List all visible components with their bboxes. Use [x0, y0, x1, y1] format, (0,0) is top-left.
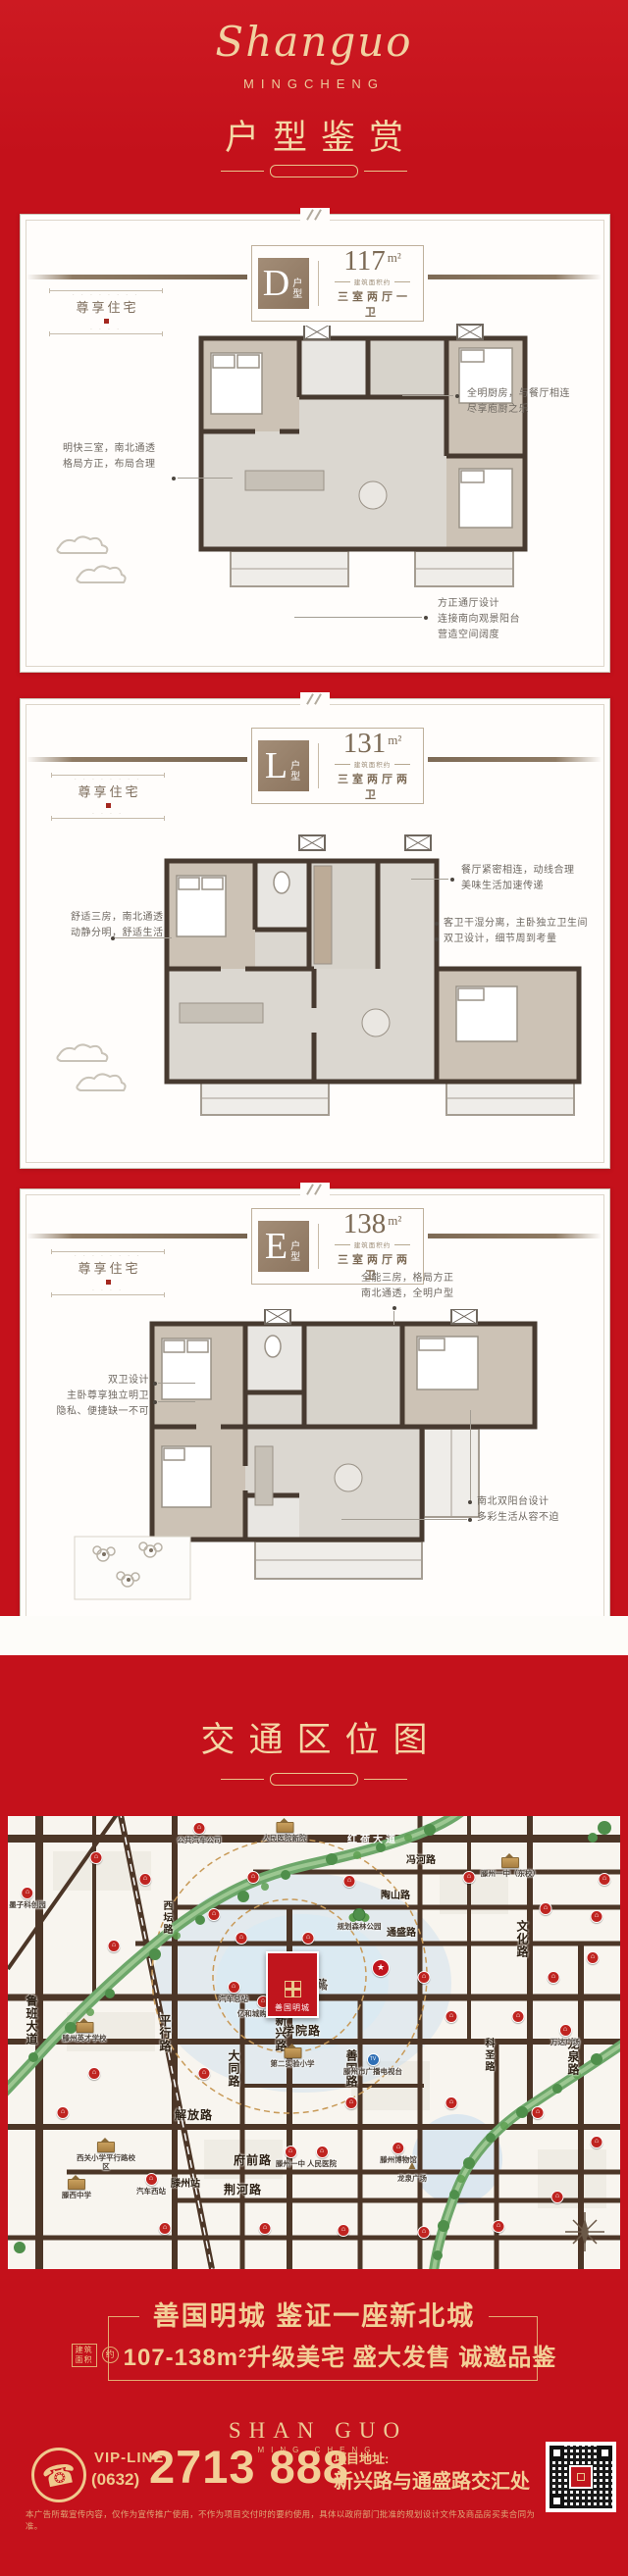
map-landmark: 滕西中学 [62, 2175, 91, 2199]
map-landmark [445, 2010, 458, 2024]
map-landmark [235, 1932, 248, 1945]
map-landmark [259, 2222, 272, 2236]
landmark-label: 西关小学平行路校区 [75, 2153, 137, 2172]
slash-decor-icon [300, 1183, 330, 1196]
landmark-icon [353, 1908, 366, 1921]
landmark-icon [276, 1822, 293, 1833]
map-landmark [463, 1871, 476, 1885]
map-landmark: 规划森林公园 [338, 1908, 382, 1931]
road-label: 府前路 [234, 2151, 272, 2168]
landmark-icon [159, 2222, 172, 2235]
disclaimer: 本广告所载宣传内容，仅作为宣传推广使用，不作为项目交付时的要约使用，具体以政府部… [26, 2508, 540, 2532]
map-landmark: 西关小学平行路校区 [75, 2138, 137, 2172]
map-landmark [551, 2191, 564, 2204]
map-landmark: 公共汽车公司 [178, 1822, 222, 1844]
landmark-icon [22, 1887, 34, 1899]
landmark-icon [343, 1875, 356, 1888]
annotation: 餐厅紧密相连，动线合理美味生活加速传递 [461, 863, 603, 894]
landmark-icon [76, 2022, 93, 2033]
landmark-icon [108, 1940, 121, 1952]
map-landmark [372, 1959, 390, 1978]
area-value: 138m² [328, 1210, 417, 1238]
map-landmark [418, 1971, 431, 1985]
map-landmark [345, 2096, 358, 2110]
road-label: 西坛路 [159, 1900, 174, 1936]
landmark-icon [235, 1932, 248, 1945]
annotation: 舒适三房，南北通透动静分明，舒适生活 [71, 910, 247, 941]
section-title-huxing: 户型鉴赏 [0, 110, 628, 160]
type-letter-box: L 户型 [258, 740, 309, 791]
map-landmark [302, 1932, 315, 1945]
map-landmark: 滕州市广播电视台 [343, 2053, 402, 2076]
map-landmark [198, 2067, 211, 2081]
area-note: 建筑面积约 [328, 759, 417, 769]
area-value: 117m² [328, 247, 417, 276]
map-landmark [343, 1875, 356, 1889]
landmark-icon [90, 1851, 103, 1864]
brand-logo-sub: MINGCHENG [0, 76, 628, 91]
map-landmark: 滕州一中 [276, 2146, 305, 2168]
area-code: (0632) [91, 2470, 139, 2490]
area-note: 建筑面积约 [328, 277, 417, 286]
layout-text: 三室两厅一卫 [328, 288, 417, 320]
road-label: 荆河路 [224, 2181, 262, 2197]
poster: Shanguo MINGCHENG 户型鉴赏 D 户型 117m² 建筑面积约 … [0, 0, 628, 2576]
annotation: 南北双阳台设计多彩生活从容不迫 [477, 1494, 609, 1526]
footer-slogan: 善国明城 鉴证一座新北城 [0, 2295, 628, 2333]
landmark-label: 滕州一中 [276, 2159, 305, 2168]
landmark-label: 第二实验小学 [271, 2059, 315, 2068]
annotation: 全能三房，格局方正南北通透，全明户型 [361, 1271, 543, 1302]
map-landmark: 人民医院新院 [263, 1818, 307, 1843]
landmark-icon [493, 2220, 505, 2233]
map-landmark: 滕州英才学校 [63, 2018, 107, 2043]
annotation: 全明厨房，与餐厅相连尽享庖厨之乐 [467, 386, 604, 418]
landmark-label: 规划森林公园 [338, 1922, 382, 1931]
map-landmark [208, 1908, 221, 1922]
landmark-icon [445, 2010, 458, 2023]
landmark-icon [259, 2222, 272, 2235]
landmark-label: 万达广场 [550, 2038, 580, 2046]
qr-code [546, 2442, 616, 2512]
landmark-icon [88, 2067, 101, 2080]
landmark-icon [345, 2096, 358, 2109]
landmark-label: 墨子科创园 [9, 1900, 46, 1909]
address-value: 新兴路与通盛路交汇处 [334, 2465, 530, 2494]
map-landmark [108, 1940, 121, 1953]
landmark-icon [57, 2106, 70, 2119]
title-divider [0, 165, 628, 177]
map-landmark [88, 2067, 101, 2081]
landmark-label: 滕州英才学校 [63, 2034, 107, 2043]
map-landmark [548, 1971, 560, 1985]
road-label: 冯河路 [406, 1851, 436, 1866]
landmark-label: 公共汽车公司 [178, 1836, 222, 1844]
map-landmark: 万达广场 [550, 2024, 580, 2046]
section-title-map: 交通区位图 [0, 1712, 628, 1762]
map-landmark [57, 2106, 70, 2120]
map-landmark: 人民医院 [307, 2146, 337, 2168]
landmark-icon [284, 2047, 301, 2058]
map-landmark [599, 1873, 611, 1887]
type-letter-box: D 户型 [258, 258, 309, 309]
location-map: 红荷大道冯河路陶山路通盛路北辛路学院路解放路府前路荆河路滕州站鲁班大道西坛路平行… [8, 1816, 620, 2269]
landmark-icon [228, 1981, 240, 1994]
landmark-label: 滕西中学 [62, 2191, 91, 2199]
landmark-icon [551, 2191, 564, 2203]
landmark-icon [247, 1871, 260, 1884]
landmark-icon [599, 1873, 611, 1886]
landmark-label: 龙泉广场 [397, 2174, 427, 2183]
map-landmark [591, 2136, 603, 2149]
landmark-label: 滕州一中（东校） [481, 1869, 540, 1878]
map-landmark [540, 1902, 552, 1916]
side-label: · · · · · · · · 尊享住宅 · · · · [47, 1251, 169, 1295]
road-label: 滕州站 [171, 2175, 200, 2190]
cloud-decor-icon [51, 1037, 130, 1106]
map-landmark [493, 2220, 505, 2234]
map-landmark [247, 1871, 260, 1885]
card-l-badge: L 户型 131m² 建筑面积约 三室两厅两卫 [251, 728, 424, 804]
landmark-label: 人民医院新院 [263, 1834, 307, 1843]
map-landmark [512, 2010, 525, 2024]
landmark-icon [512, 2010, 525, 2023]
landmark-icon [193, 1822, 206, 1835]
road-label: 平行路 [157, 2014, 174, 2052]
road-label: 大同路 [226, 2049, 242, 2088]
landmark-icon [145, 2173, 158, 2186]
layout-text: 三室两厅两卫 [328, 771, 417, 802]
phone-number: 2713 888 [149, 2440, 349, 2494]
landmark-icon [540, 1902, 552, 1915]
road-label: 陶山路 [381, 1887, 410, 1901]
card-d-badge: D 户型 117m² 建筑面积约 三室两厅一卫 [251, 245, 424, 322]
annotation: 双卫设计主卧尊享独立明卫隐私、便捷缺一不可 [37, 1373, 149, 1420]
map-landmark: 滕州一中（东校） [481, 1853, 540, 1878]
approx-circle: 约 [102, 2347, 119, 2363]
landmark-icon [406, 2159, 418, 2173]
map-landmark [445, 2096, 458, 2110]
side-label: · · · · · · · · 尊享住宅 · · · · [47, 775, 169, 819]
brand-logo-script: Shanguo [0, 18, 628, 66]
map-landmark [159, 2222, 172, 2236]
floor-plan-e [137, 1309, 579, 1618]
section-separator [0, 1616, 628, 1655]
landmark-icon [68, 2179, 85, 2190]
area-badge: 建筑面积 [72, 2344, 97, 2367]
map-landmark [338, 2224, 350, 2238]
landmark-icon [316, 2146, 329, 2158]
landmark-icon [548, 1971, 560, 1984]
map-landmark [418, 2226, 431, 2240]
landmark-icon [97, 2142, 115, 2152]
footer-subline: 建筑面积 约 107-138m²升级美宅 盛大发售 诚邀品鉴 [0, 2338, 628, 2372]
landmark-icon [501, 1857, 519, 1868]
landmark-icon [591, 2136, 603, 2148]
side-label: · · · · · · · · 尊享住宅 · · · · [45, 290, 167, 334]
floor-plan-d [186, 324, 540, 623]
landmark-label: 汽车西站 [136, 2187, 166, 2196]
landmark-icon [139, 1873, 152, 1886]
landmark-icon [445, 2096, 458, 2109]
annotation: 方正通厅设计连接南向观景阳台营造空间阔度 [438, 596, 600, 643]
landmark-icon [302, 1932, 315, 1945]
landmark-icon [285, 2146, 297, 2158]
road-label: 红荷大道 [347, 1831, 398, 1845]
landmark-icon [559, 2024, 572, 2037]
road-label: 通盛路 [387, 1924, 416, 1939]
road-label: 文化路 [514, 1920, 531, 1958]
landmark-icon [198, 2067, 211, 2080]
landmark-icon [208, 1908, 221, 1921]
map-landmark [591, 1910, 603, 1924]
landmark-label: 人民医院 [307, 2159, 337, 2168]
road-label: 解放路 [175, 2106, 213, 2123]
landmark-icon [532, 2106, 545, 2119]
landmark-icon [367, 2053, 380, 2066]
title-divider [0, 1773, 628, 1786]
phone-icon [31, 2448, 86, 2502]
slash-decor-icon [300, 208, 330, 222]
road-label: 科圣路 [481, 2038, 496, 2073]
landmark-icon [463, 1871, 476, 1884]
annotation: 客卫干湿分离，主卧独立卫生间双卫设计，细节周到考量 [444, 916, 605, 947]
area-note: 建筑面积约 [328, 1239, 417, 1249]
map-landmark: 龙泉广场 [397, 2159, 427, 2183]
landmark-icon [587, 1951, 600, 1964]
map-landmark [90, 1851, 103, 1865]
landmark-icon [418, 2226, 431, 2239]
landmark-icon [392, 2142, 405, 2154]
slash-decor-icon [300, 692, 330, 706]
project-marker: 善国明城 [266, 1951, 319, 2018]
map-landmark [587, 1951, 600, 1965]
type-letter-box: E 户型 [258, 1221, 309, 1272]
flower-decor-icon [74, 1536, 191, 1600]
landmark-icon [591, 1910, 603, 1923]
area-value: 131m² [328, 730, 417, 758]
landmark-icon [418, 1971, 431, 1984]
cloud-decor-icon [51, 530, 130, 598]
landmark-icon [338, 2224, 350, 2237]
map-landmark: 墨子科创园 [9, 1887, 46, 1909]
map-landmark [532, 2106, 545, 2120]
map-landmark [139, 1873, 152, 1887]
landmark-label: 滕州市广播电视台 [343, 2067, 402, 2076]
road-label: 鲁班大道 [24, 1995, 40, 2046]
landmark-icon [372, 1959, 390, 1977]
annotation: 明快三室，南北通透格局方正，布局合理 [63, 441, 235, 473]
map-landmark: 第二实验小学 [271, 2044, 315, 2068]
map-landmark: 汽车西站 [136, 2173, 166, 2196]
